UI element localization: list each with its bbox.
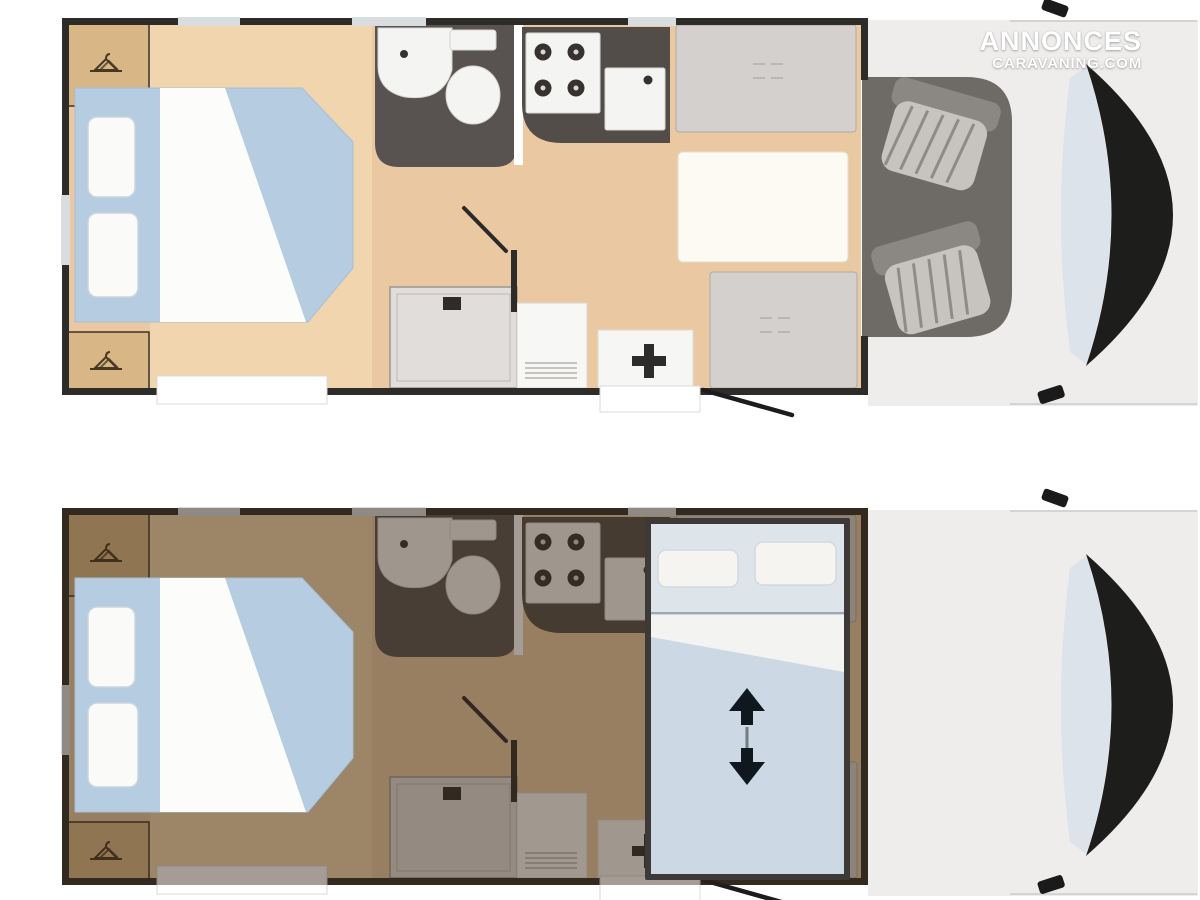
watermark-line1: ANNONCES <box>979 28 1142 55</box>
cab <box>862 75 1012 340</box>
night-habitation <box>61 507 868 900</box>
watermark: ANNONCES CARAVANING.COM <box>979 28 1142 71</box>
main-bed-bright <box>75 578 353 812</box>
day-habitation <box>61 17 868 415</box>
floorplan-night <box>61 488 1198 900</box>
motorhome-floorplan-page: ANNONCES CARAVANING.COM <box>0 0 1200 900</box>
floorplan-diagram <box>0 0 1200 900</box>
watermark-line2: CARAVANING.COM <box>979 56 1142 71</box>
